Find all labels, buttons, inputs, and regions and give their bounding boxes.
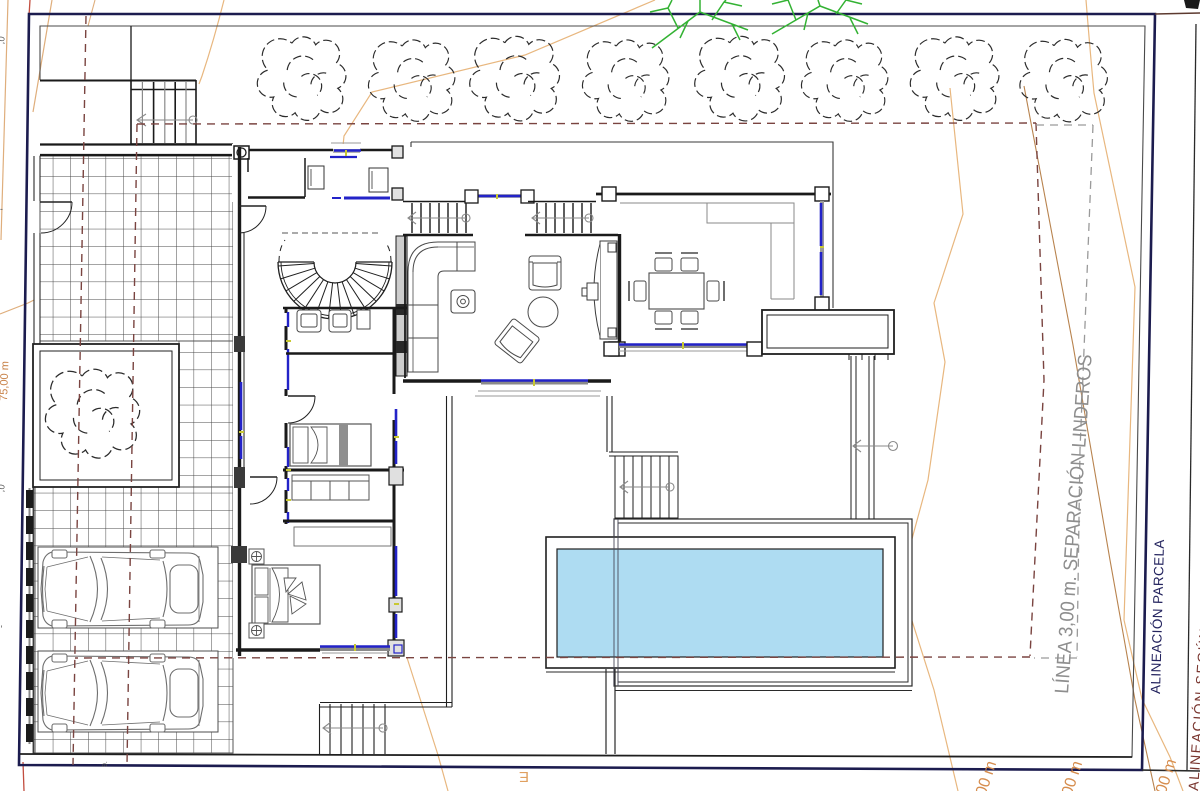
svg-text:75,00 m: 75,00 m: [0, 361, 11, 401]
svg-text:E: E: [519, 768, 529, 785]
svg-text:9.: 9.: [102, 761, 109, 767]
svg-text:-: -: [0, 204, 3, 214]
